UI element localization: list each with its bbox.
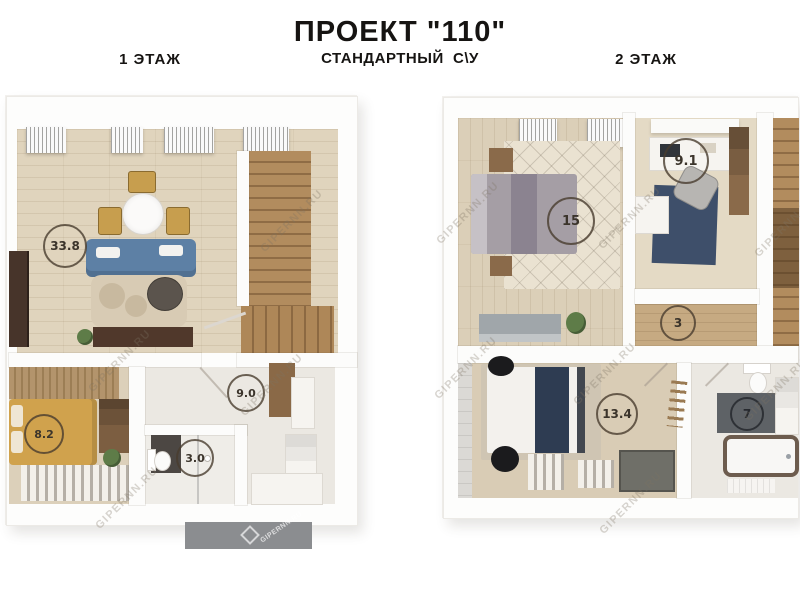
interior-wall: [9, 353, 201, 367]
stairwell-wall: [757, 113, 773, 346]
room-area-bathroom: 7: [730, 397, 764, 431]
daybed: [635, 196, 669, 234]
nightstand: [490, 256, 512, 276]
room-area-bedroom2: 13.4: [596, 393, 638, 435]
sofa-pillow: [159, 245, 183, 256]
room-area-office: 9.1: [663, 138, 709, 184]
plant: [77, 329, 93, 345]
plant: [103, 449, 121, 467]
bedroom-wardrobe: [99, 399, 131, 453]
wardrobe-gray: [479, 314, 561, 342]
room-area-bedroom: 8.2: [24, 414, 64, 454]
dark-mat: [619, 450, 675, 492]
window-curtain: [243, 127, 289, 153]
black-pouf: [488, 356, 514, 376]
interior-wall: [623, 113, 635, 346]
bathtub: [723, 435, 799, 477]
coffee-table: [147, 277, 183, 311]
page-title: ПРОЕКТ "110": [0, 16, 800, 49]
dining-chair: [98, 207, 122, 235]
room-area-hall: 9.0: [227, 374, 265, 412]
bathtub-faucet: [786, 454, 791, 459]
headboard-wall: [9, 367, 119, 399]
floor1-plan: 33.8 9.0 8.2 3.0: [6, 96, 358, 526]
stairwell: [773, 118, 799, 346]
striped-rug: [578, 460, 614, 488]
watermark-logo-diamond: [240, 525, 260, 545]
floor1-label: 1 ЭТАЖ: [70, 51, 230, 68]
plant: [566, 312, 586, 334]
bed-pillow: [11, 405, 23, 427]
room-area-bedroom1: 15: [547, 197, 595, 245]
dining-chair: [128, 171, 156, 193]
nightstand: [489, 148, 513, 172]
toilet-bowl: [154, 451, 171, 471]
kitchen-cabinets: [9, 251, 29, 347]
stairs: [249, 151, 311, 306]
bathroom-wall: [235, 425, 247, 505]
floor2-plan: 15 9.1 3 13.4 7: [443, 97, 799, 519]
room-area-living-kitchen: 33.8: [43, 224, 87, 268]
bathroom-wall: [145, 425, 247, 435]
window-curtain: [164, 127, 214, 153]
office-shelf: [729, 127, 749, 215]
black-pouf: [491, 446, 519, 472]
bed-frame: [577, 367, 585, 453]
rug-pattern: [99, 283, 125, 309]
wall-shelf: [651, 119, 739, 133]
dining-table: [122, 193, 164, 235]
rug-pattern: [125, 295, 147, 317]
window-curtain: [26, 127, 66, 153]
stair-opening: [773, 208, 799, 288]
bedroom-rug: [21, 465, 131, 501]
floor2-label: 2 ЭТАЖ: [566, 51, 726, 68]
bed-blanket: [511, 174, 537, 254]
interior-wall: [237, 353, 357, 367]
bed-runner-navy: [535, 367, 569, 453]
window-curtain: [111, 127, 143, 153]
tv-console: [93, 327, 193, 347]
room-area-bathroom: 3.0: [176, 439, 214, 477]
stair-banister-wall: [237, 151, 249, 306]
striped-rug: [528, 454, 564, 490]
towels: [727, 479, 775, 493]
interior-wall: [635, 289, 759, 304]
interior-wall: [129, 367, 145, 505]
toilet-bowl: [749, 372, 767, 394]
bed-white: [487, 367, 585, 453]
bed-pillow: [11, 431, 23, 453]
stairs-landing: [241, 306, 334, 353]
wall-paneling: [458, 363, 472, 498]
porch: GIPERNN.RU: [185, 522, 312, 549]
room-area-hall: 3: [660, 305, 696, 341]
bathroom-cabinet: [775, 377, 799, 435]
bed-pillows: [471, 174, 487, 254]
hall-wardrobe: [291, 377, 315, 429]
sofa-pillow: [96, 247, 120, 258]
hall-bench: [251, 473, 323, 505]
dining-chair: [166, 207, 190, 235]
